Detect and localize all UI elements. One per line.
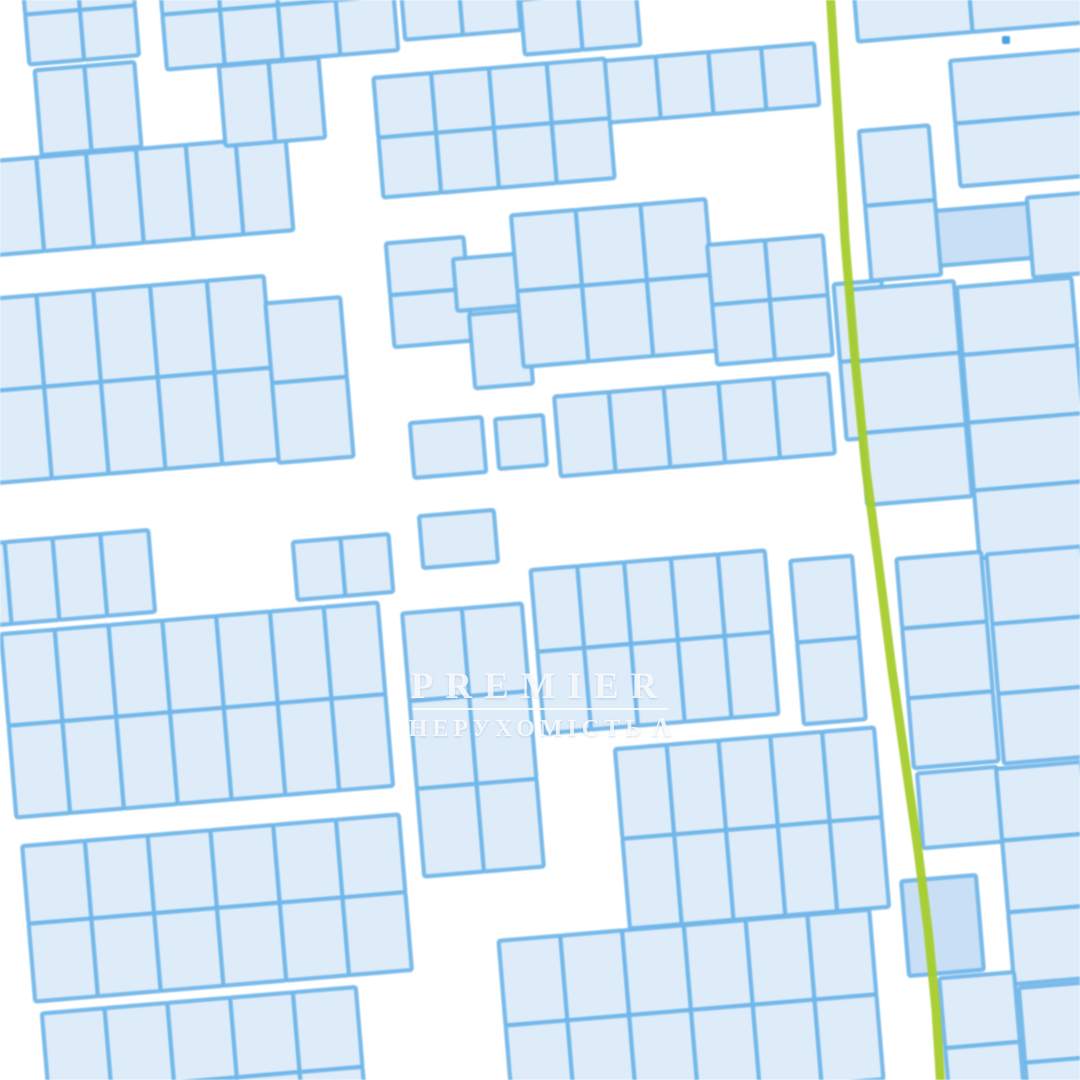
- parcel[interactable]: [148, 830, 217, 913]
- parcel[interactable]: [718, 550, 772, 636]
- parcel-block: [790, 556, 866, 725]
- parcel-block: [957, 278, 1080, 559]
- parcel[interactable]: [431, 68, 494, 133]
- parcel[interactable]: [419, 510, 498, 568]
- parcel[interactable]: [674, 830, 733, 924]
- parcel-block: [410, 417, 486, 478]
- parcel[interactable]: [417, 784, 484, 877]
- parcel[interactable]: [996, 762, 1080, 841]
- parcel[interactable]: [708, 48, 766, 114]
- parcel[interactable]: [624, 558, 678, 644]
- parcel-block: [896, 552, 998, 768]
- parcel[interactable]: [712, 300, 775, 365]
- parcel-block: [917, 767, 1003, 848]
- parcel[interactable]: [410, 696, 477, 789]
- parcel[interactable]: [622, 835, 681, 929]
- parcel-block: [603, 43, 819, 123]
- parcel[interactable]: [537, 648, 591, 734]
- parcel[interactable]: [280, 897, 349, 980]
- parcel[interactable]: [154, 908, 223, 991]
- parcel[interactable]: [955, 112, 1080, 186]
- parcel-block: [986, 546, 1080, 763]
- parcel[interactable]: [861, 424, 972, 505]
- parcel[interactable]: [210, 825, 279, 908]
- parcel-block: [402, 603, 544, 876]
- parcel[interactable]: [332, 694, 394, 790]
- parcel[interactable]: [790, 556, 859, 643]
- parcel-block: [554, 374, 835, 477]
- parcel[interactable]: [436, 128, 499, 193]
- parcel[interactable]: [631, 640, 685, 726]
- parcel[interactable]: [336, 0, 398, 55]
- parcel[interactable]: [53, 534, 108, 620]
- parcel[interactable]: [797, 637, 866, 724]
- parcel[interactable]: [215, 368, 279, 464]
- parcel[interactable]: [855, 353, 966, 434]
- parcel[interactable]: [85, 836, 154, 919]
- parcel[interactable]: [917, 767, 1003, 848]
- parcel[interactable]: [499, 936, 568, 1026]
- parcel[interactable]: [957, 278, 1077, 355]
- parcel[interactable]: [1, 630, 63, 726]
- parcel[interactable]: [719, 378, 781, 462]
- parcel[interactable]: [815, 994, 884, 1080]
- parcel[interactable]: [963, 345, 1080, 422]
- parcel[interactable]: [42, 1008, 111, 1080]
- parcel[interactable]: [770, 732, 829, 826]
- parcel-block: [531, 550, 779, 733]
- parcel-block: [0, 530, 155, 628]
- parcel[interactable]: [746, 915, 815, 1005]
- parcel[interactable]: [517, 286, 588, 367]
- parcel-block: [1, 603, 393, 818]
- parcel[interactable]: [902, 622, 993, 699]
- parcel[interactable]: [410, 417, 486, 478]
- parcel[interactable]: [158, 372, 222, 468]
- parcel[interactable]: [664, 383, 726, 467]
- parcel[interactable]: [753, 1000, 822, 1080]
- parcel[interactable]: [896, 552, 987, 629]
- parcel-highlighted[interactable]: [901, 875, 984, 976]
- parcel[interactable]: [726, 826, 785, 920]
- parcel[interactable]: [992, 616, 1080, 694]
- parcel-block: [499, 910, 884, 1080]
- parcel[interactable]: [273, 820, 342, 903]
- parcel[interactable]: [269, 58, 326, 142]
- parcel[interactable]: [84, 62, 141, 151]
- parcel[interactable]: [950, 50, 1080, 124]
- parcel[interactable]: [719, 736, 778, 830]
- parcel[interactable]: [91, 913, 160, 996]
- parcel[interactable]: [945, 1042, 1026, 1080]
- parcel-block: [1019, 983, 1080, 1080]
- parcel[interactable]: [506, 1020, 575, 1080]
- parcel[interactable]: [967, 0, 1080, 32]
- parcel[interactable]: [402, 608, 469, 701]
- parcel[interactable]: [1008, 905, 1080, 984]
- parcel[interactable]: [116, 712, 178, 808]
- parcel[interactable]: [217, 903, 286, 986]
- parcel[interactable]: [552, 118, 615, 183]
- parcel[interactable]: [773, 374, 835, 458]
- parcel[interactable]: [1002, 834, 1080, 913]
- parcel-block: [707, 235, 833, 364]
- parcel[interactable]: [547, 59, 610, 124]
- parcel[interactable]: [615, 745, 674, 839]
- parcel[interactable]: [691, 1005, 760, 1080]
- parcel[interactable]: [577, 562, 631, 648]
- parcel[interactable]: [1027, 193, 1080, 278]
- parcel[interactable]: [647, 275, 718, 356]
- parcel[interactable]: [220, 5, 282, 65]
- parcel[interactable]: [707, 240, 770, 305]
- parcel-block: [615, 727, 889, 928]
- parcel[interactable]: [725, 632, 779, 718]
- parcel[interactable]: [5, 538, 60, 624]
- parcel[interactable]: [162, 10, 224, 70]
- parcels-layer: [0, 0, 1080, 1080]
- parcel[interactable]: [35, 66, 92, 155]
- parcel[interactable]: [62, 717, 124, 813]
- parcel-block: [21, 0, 139, 64]
- parcel[interactable]: [25, 10, 84, 64]
- parcel-block: [853, 0, 1080, 42]
- map-viewport: PREMIER НЕРУХОМІСТЬΛ: [0, 0, 1080, 1080]
- parcel[interactable]: [531, 566, 585, 652]
- parcel-block: [511, 199, 718, 367]
- parcel[interactable]: [584, 644, 638, 730]
- parcel-block: [158, 0, 398, 70]
- map-marker-dot: [1002, 36, 1010, 44]
- parcel[interactable]: [477, 779, 544, 872]
- parcel[interactable]: [219, 62, 276, 146]
- cadastral-map[interactable]: [0, 0, 1080, 1080]
- parcel-block: [399, 0, 520, 40]
- parcel-block-highlighted: [931, 203, 1035, 266]
- parcel-block: [219, 58, 325, 146]
- parcel[interactable]: [100, 530, 155, 616]
- parcel[interactable]: [44, 382, 108, 478]
- parcel[interactable]: [29, 919, 98, 1002]
- parcel[interactable]: [378, 133, 441, 198]
- parcel[interactable]: [998, 686, 1080, 764]
- parcel[interactable]: [469, 691, 536, 784]
- parcel[interactable]: [678, 636, 732, 722]
- parcel[interactable]: [109, 621, 171, 717]
- parcel[interactable]: [603, 57, 661, 123]
- parcel[interactable]: [761, 43, 819, 109]
- parcel[interactable]: [494, 123, 557, 188]
- parcel-block: [22, 814, 412, 1001]
- parcel-block: [293, 534, 394, 600]
- parcel[interactable]: [167, 998, 236, 1080]
- parcel[interactable]: [629, 1010, 698, 1080]
- parcel-block: [0, 276, 279, 488]
- parcel[interactable]: [765, 235, 828, 300]
- parcel-block: [516, 0, 641, 55]
- parcel[interactable]: [489, 63, 552, 128]
- parcel[interactable]: [207, 276, 271, 372]
- parcel[interactable]: [265, 297, 346, 383]
- parcel[interactable]: [101, 377, 165, 473]
- parcel[interactable]: [770, 295, 833, 360]
- parcel[interactable]: [272, 377, 353, 463]
- parcel[interactable]: [1019, 983, 1080, 1063]
- parcel[interactable]: [939, 972, 1020, 1048]
- parcel[interactable]: [293, 987, 362, 1072]
- parcel[interactable]: [150, 281, 214, 377]
- parcel[interactable]: [105, 1003, 174, 1080]
- parcel[interactable]: [93, 286, 157, 382]
- parcel[interactable]: [373, 73, 436, 138]
- parcel-block: [35, 62, 142, 155]
- parcel[interactable]: [582, 280, 653, 361]
- parcel[interactable]: [343, 892, 412, 975]
- parcel-block: [1027, 193, 1080, 278]
- parcel[interactable]: [9, 721, 71, 817]
- parcel[interactable]: [236, 137, 294, 235]
- parcel[interactable]: [622, 925, 691, 1015]
- parcel[interactable]: [778, 821, 837, 915]
- parcel[interactable]: [849, 281, 960, 362]
- parcel-block: [0, 137, 293, 260]
- parcel[interactable]: [859, 125, 935, 206]
- parcel[interactable]: [224, 703, 286, 799]
- parcel[interactable]: [830, 817, 889, 911]
- parcel[interactable]: [656, 52, 714, 118]
- parcel[interactable]: [520, 0, 582, 55]
- parcel[interactable]: [968, 413, 1080, 490]
- parcel[interactable]: [865, 200, 941, 281]
- parcel[interactable]: [667, 740, 726, 834]
- parcel[interactable]: [80, 5, 139, 59]
- parcel[interactable]: [511, 210, 582, 291]
- parcel[interactable]: [278, 0, 340, 60]
- parcel[interactable]: [853, 0, 973, 42]
- parcel[interactable]: [641, 199, 712, 280]
- parcel[interactable]: [336, 814, 405, 897]
- parcel[interactable]: [55, 625, 117, 721]
- parcel-highlighted[interactable]: [931, 203, 1035, 266]
- parcel[interactable]: [495, 415, 547, 469]
- parcel[interactable]: [170, 708, 232, 804]
- parcel-block: [996, 762, 1080, 984]
- parcel[interactable]: [576, 205, 647, 286]
- parcel-block: [859, 125, 941, 280]
- parcel[interactable]: [609, 387, 671, 471]
- parcel[interactable]: [1025, 1057, 1080, 1080]
- parcel[interactable]: [324, 603, 386, 699]
- parcel[interactable]: [270, 607, 332, 703]
- parcel[interactable]: [684, 920, 753, 1010]
- parcel[interactable]: [22, 841, 91, 924]
- parcel[interactable]: [578, 0, 640, 50]
- parcel[interactable]: [986, 546, 1080, 624]
- parcel-block: [42, 987, 369, 1080]
- parcel[interactable]: [293, 538, 346, 600]
- parcel[interactable]: [822, 727, 881, 821]
- parcel[interactable]: [567, 1015, 636, 1080]
- parcel-block: [939, 972, 1025, 1080]
- parcel[interactable]: [162, 616, 224, 712]
- parcel-block: [419, 510, 498, 568]
- parcel-block: [495, 415, 547, 469]
- parcel[interactable]: [554, 392, 616, 476]
- parcel[interactable]: [341, 534, 394, 596]
- parcel[interactable]: [457, 0, 521, 35]
- parcel[interactable]: [671, 554, 725, 640]
- parcel[interactable]: [462, 603, 529, 696]
- parcel[interactable]: [560, 930, 629, 1020]
- parcel[interactable]: [278, 699, 340, 795]
- parcel-block: [950, 50, 1080, 187]
- parcel[interactable]: [216, 612, 278, 708]
- parcel[interactable]: [37, 290, 101, 386]
- parcel-block: [265, 297, 353, 463]
- parcel[interactable]: [230, 992, 299, 1077]
- parcel-block-highlighted: [901, 875, 984, 976]
- parcel[interactable]: [908, 691, 999, 768]
- parcel[interactable]: [399, 0, 463, 40]
- parcel-block: [373, 59, 614, 198]
- parcel[interactable]: [807, 910, 876, 1000]
